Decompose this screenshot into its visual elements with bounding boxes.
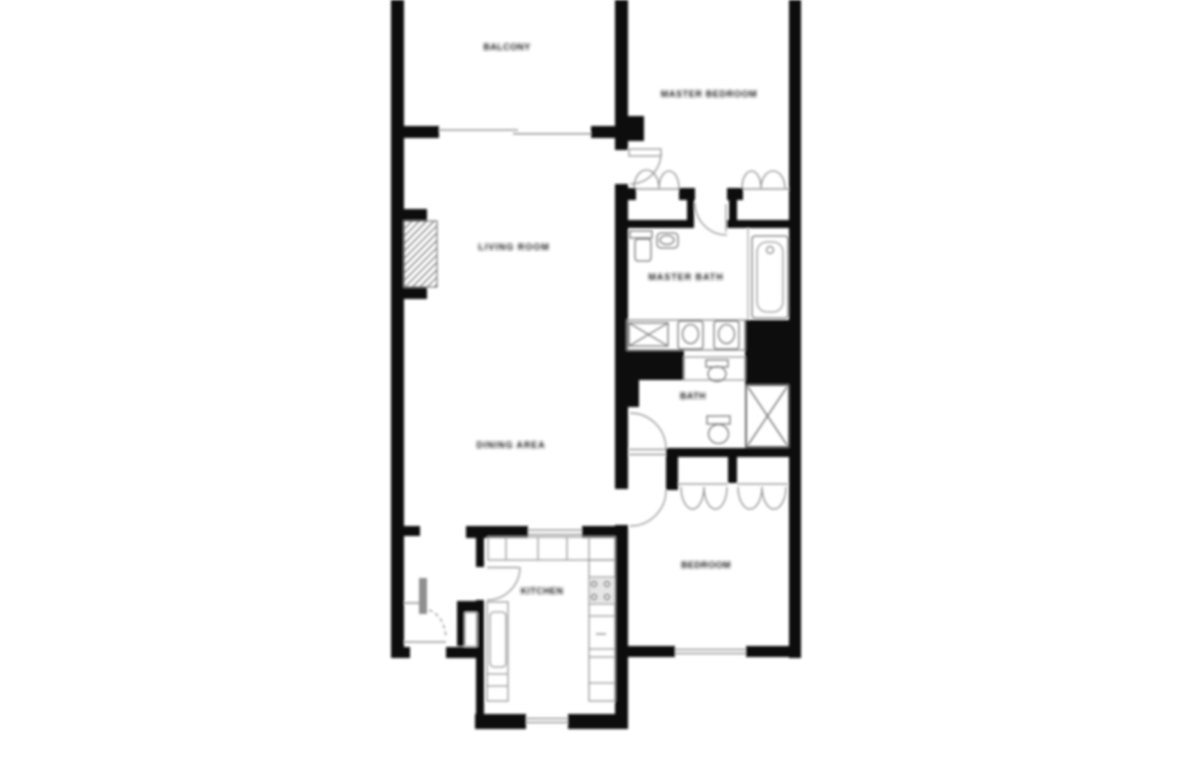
svg-text:DINING AREA: DINING AREA [476,440,545,450]
svg-text:BALCONY: BALCONY [483,42,530,52]
svg-text:BATH: BATH [680,391,706,401]
svg-text:KITCHEN: KITCHEN [521,586,564,596]
svg-text:MASTER BEDROOM: MASTER BEDROOM [661,89,758,99]
svg-text:BEDROOM: BEDROOM [681,560,731,570]
svg-text:LIVING ROOM: LIVING ROOM [478,242,550,252]
svg-text:MASTER BATH: MASTER BATH [648,272,723,282]
